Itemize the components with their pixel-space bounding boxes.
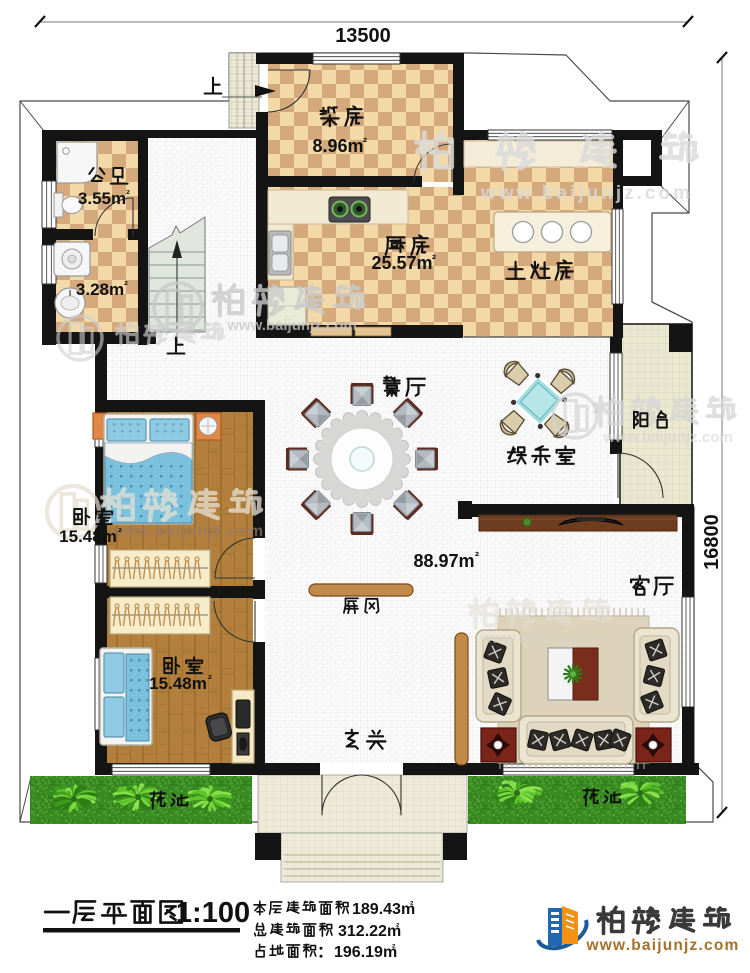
svg-text:²: ² xyxy=(475,549,479,563)
svg-text:：: ： xyxy=(317,944,333,961)
svg-text:www.baijunjz.com: www.baijunjz.com xyxy=(479,630,609,647)
svg-text:www.baijunjz.com: www.baijunjz.com xyxy=(586,937,740,954)
svg-text:189.43m: 189.43m xyxy=(352,901,415,918)
svg-text:1:100: 1:100 xyxy=(176,897,250,929)
svg-text:25.57m: 25.57m xyxy=(371,253,432,273)
svg-text:312.22m: 312.22m xyxy=(338,923,401,940)
svg-text:²: ² xyxy=(363,135,367,149)
svg-text:²: ² xyxy=(126,189,130,201)
svg-text:www.baijunjz.com: www.baijunjz.com xyxy=(109,523,264,540)
svg-text:²: ² xyxy=(432,252,436,266)
svg-text:15.48m: 15.48m xyxy=(59,527,117,546)
svg-text:www.baijunjz.com: www.baijunjz.com xyxy=(602,429,732,446)
svg-text:²: ² xyxy=(118,527,122,539)
svg-text:3.28m: 3.28m xyxy=(76,280,124,299)
svg-text:8.96m: 8.96m xyxy=(312,136,363,156)
svg-text:88.97m: 88.97m xyxy=(413,551,474,571)
svg-text:196.19m: 196.19m xyxy=(334,944,397,961)
svg-text:www.baijunjz.com: www.baijunjz.com xyxy=(226,317,356,334)
svg-text:16800: 16800 xyxy=(701,514,723,570)
svg-text:²: ² xyxy=(208,674,212,686)
svg-text:13500: 13500 xyxy=(335,25,391,47)
svg-text:3.55m: 3.55m xyxy=(78,189,126,208)
svg-text:15.48m: 15.48m xyxy=(149,674,207,693)
svg-text:²: ² xyxy=(124,280,128,292)
svg-text:www.baijunjz.com: www.baijunjz.com xyxy=(480,183,693,204)
